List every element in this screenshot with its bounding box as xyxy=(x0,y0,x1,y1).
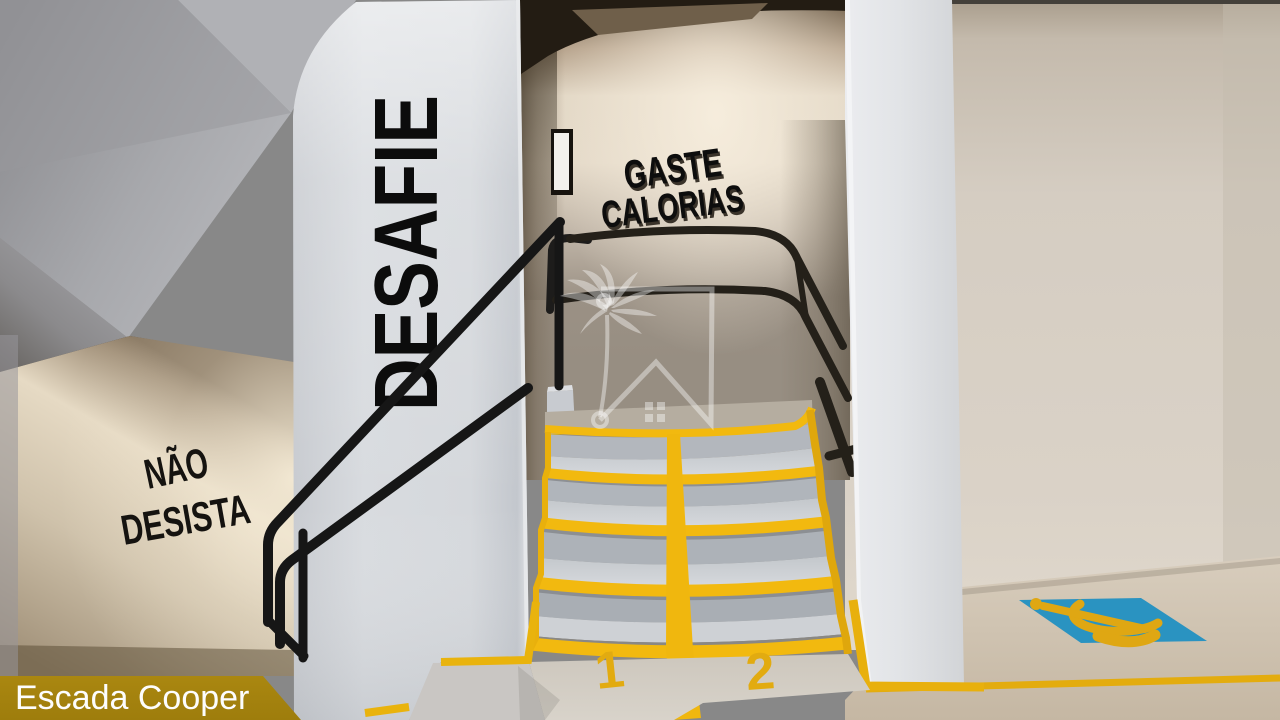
svg-text:1: 1 xyxy=(592,640,627,701)
svg-text:DESAFIE: DESAFIE xyxy=(357,95,457,411)
svg-text:Escada Cooper: Escada Cooper xyxy=(15,679,249,717)
svg-text:2: 2 xyxy=(744,642,777,702)
